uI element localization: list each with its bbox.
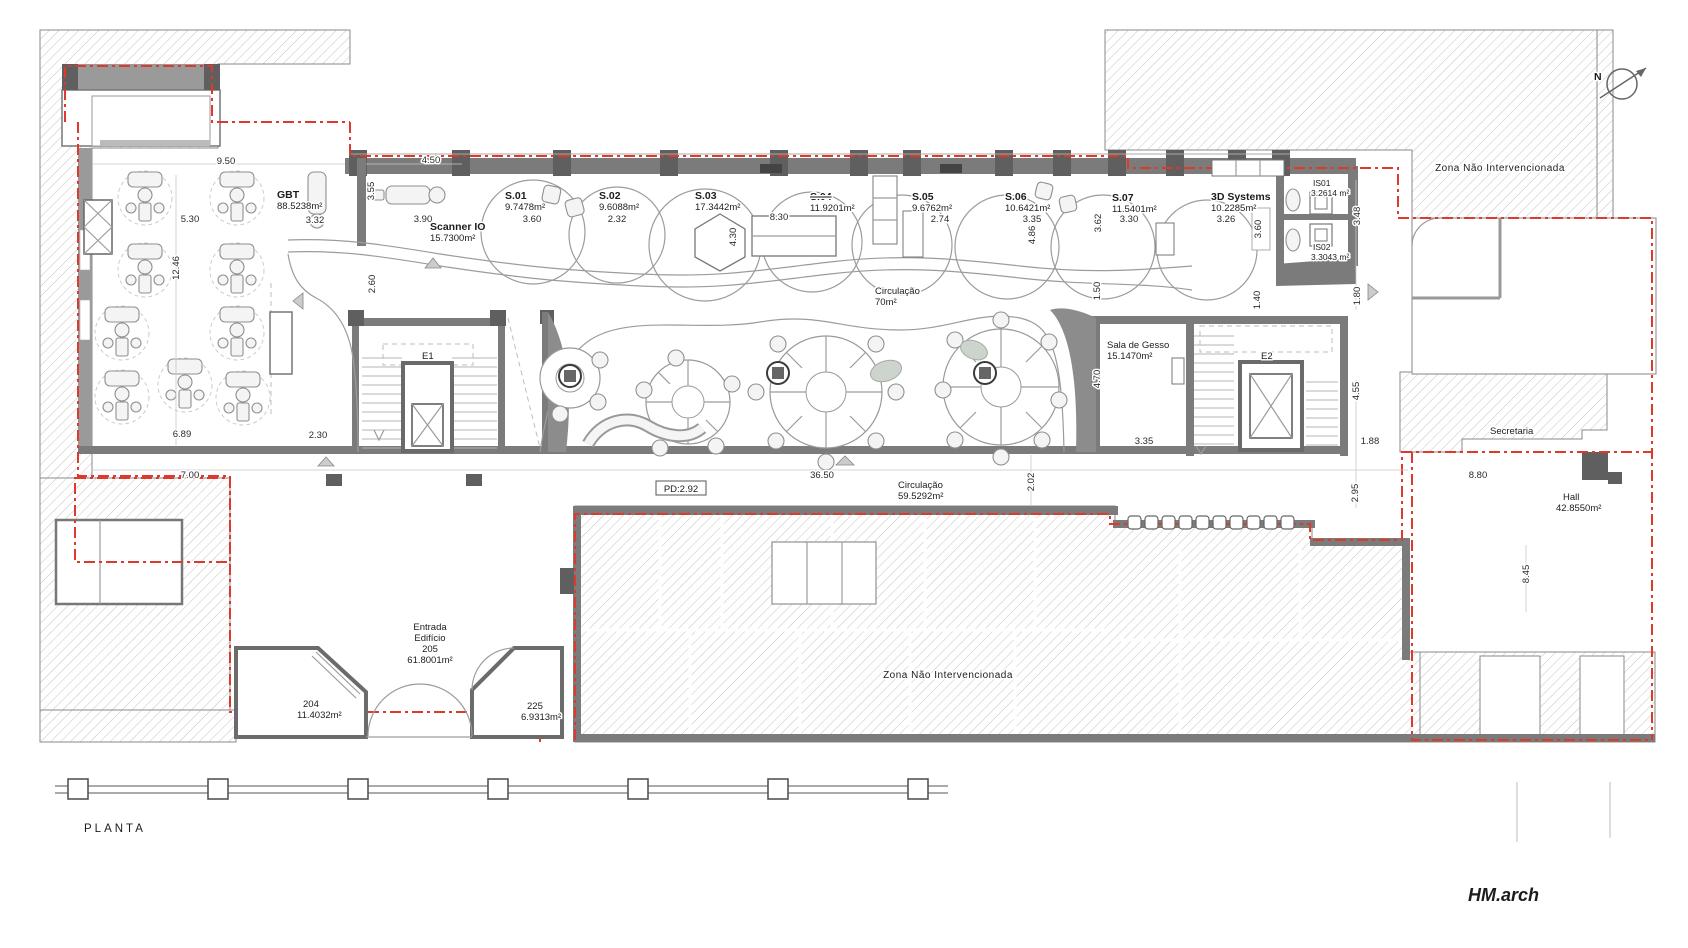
- room-label-is01: IS01: [1313, 178, 1331, 188]
- dim-label: 3.26: [1217, 214, 1236, 225]
- room-area-hall: 42.8550m²: [1556, 503, 1601, 514]
- dim-label: 3.62: [1093, 214, 1104, 233]
- colonnade: [55, 779, 1610, 842]
- room-label-s07: S.07: [1112, 192, 1134, 204]
- dim-label: 4.55: [1351, 382, 1362, 401]
- room-area-s06: 10.6421m²: [1005, 203, 1050, 214]
- dim-label: 5.30: [181, 214, 200, 225]
- room-label-225: 225: [527, 701, 543, 712]
- pd-height-label: PD:2.92: [664, 484, 698, 495]
- room-area-s02: 9.6088m²: [599, 202, 639, 213]
- room-area-circulacao-main: 59.5292m²: [898, 491, 943, 502]
- room-area-3dsystems: 10.2285m²: [1211, 203, 1256, 214]
- dim-label: 3.48: [1352, 207, 1363, 226]
- room-label-204: 204: [303, 699, 319, 710]
- floor-plan-drawing: N GBT 88.5238m² Scanner IO 15.7300m² S.0…: [0, 0, 1688, 948]
- drawing-title: PLANTA: [84, 823, 146, 835]
- firm-logo: HM.arch: [1468, 885, 1539, 905]
- dim-label: 3.32: [306, 215, 325, 226]
- zone-label-top: Zona Não Intervencionada: [1435, 163, 1565, 174]
- entrada-rooms: [236, 648, 562, 737]
- room-label-gesso: Sala de Gesso: [1107, 340, 1169, 351]
- floor-plan-canvas: N GBT 88.5238m² Scanner IO 15.7300m² S.0…: [0, 0, 1688, 948]
- core-label-e2: E2: [1261, 351, 1273, 362]
- dim-label: 7.00: [181, 470, 200, 481]
- room-area-s01: 9.7478m²: [505, 202, 545, 213]
- room-label-secretaria: Secretaria: [1490, 426, 1534, 437]
- dim-label: 1.88: [1361, 436, 1380, 447]
- room-area-204: 11.4032m²: [297, 710, 342, 721]
- core-label-e1: E1: [422, 351, 434, 362]
- dim-label: 3.60: [1253, 220, 1264, 239]
- room-area-s05: 9.6762m²: [912, 203, 952, 214]
- room-label-hall: Hall: [1563, 492, 1579, 503]
- dim-label: 2.95: [1350, 484, 1361, 503]
- dim-label: 2.02: [1026, 473, 1037, 492]
- dim-label: 6.89: [173, 429, 192, 440]
- room-area-s03: 17.3442m²: [695, 202, 740, 213]
- dim-label: 2.60: [367, 275, 378, 294]
- room-area-entrada: 61.8001m²: [407, 655, 452, 666]
- dim-label: 8.80: [1469, 470, 1488, 481]
- dim-label: 4.30: [728, 228, 739, 247]
- dim-label: 3.55: [366, 182, 377, 201]
- room-label-s03: S.03: [695, 190, 717, 202]
- room-label-circulacao-top: Circulação: [875, 286, 920, 297]
- room-area-is01: 3.2614 m²: [1311, 188, 1349, 198]
- zone-label-bottom: Zona Não Intervencionada: [883, 670, 1013, 681]
- room-label-3dsystems: 3D Systems: [1211, 191, 1271, 203]
- dim-label: 3.35: [1135, 436, 1154, 447]
- room-area-scanner: 15.7300m²: [430, 233, 475, 244]
- pd-height-tag: PD:2.92: [656, 481, 706, 495]
- dim-label: 9.50: [217, 156, 236, 167]
- room-label-entrada-3: 205: [422, 644, 438, 655]
- dim-label: 4.70: [1092, 370, 1103, 389]
- dim-label: 3.60: [523, 214, 542, 225]
- room-label-s02: S.02: [599, 190, 621, 202]
- room-label-s06: S.06: [1005, 191, 1027, 203]
- room-label-entrada-2: Edifício: [414, 633, 445, 644]
- dim-label: 3.35: [1023, 214, 1042, 225]
- room-label-s01: S.01: [505, 190, 527, 202]
- stair-core-e2: [1194, 326, 1338, 454]
- room-area-circulacao-top: 70m²: [875, 297, 897, 308]
- room-area-gbt: 88.5238m²: [277, 201, 322, 212]
- room-area-225: 6.9313m²: [521, 712, 561, 723]
- north-label: N: [1594, 71, 1602, 83]
- dim-label: 8.30: [770, 212, 789, 223]
- room-label-s04: S.04: [810, 191, 832, 203]
- room-label-s05: S.05: [912, 191, 934, 203]
- dim-label: 1.40: [1252, 291, 1263, 310]
- room-label-entrada-1: Entrada: [413, 622, 447, 633]
- dim-label: 4.86: [1027, 226, 1038, 245]
- room-label-gbt: GBT: [277, 189, 300, 201]
- dim-label: 2.30: [309, 430, 328, 441]
- dim-label: 4.50: [422, 155, 441, 166]
- room-label-scanner: Scanner IO: [430, 221, 485, 233]
- dim-label: 1.50: [1092, 282, 1103, 301]
- room-area-is02: 3.3043 m²: [1311, 252, 1349, 262]
- room-area-s04: 11.9201m²: [810, 203, 855, 214]
- dim-label: 12.46: [171, 256, 182, 280]
- dim-label: 2.32: [608, 214, 627, 225]
- room-label-circulacao-main: Circulação: [898, 480, 943, 491]
- dim-label: 36.50: [810, 470, 834, 481]
- dim-label: 3.90: [414, 214, 433, 225]
- dim-label: 3.30: [1120, 214, 1139, 225]
- top-left-block: [62, 64, 220, 146]
- dim-label: 2.74: [931, 214, 950, 225]
- dim-label: 1.80: [1352, 287, 1363, 306]
- dim-label: 8.45: [1521, 565, 1532, 584]
- room-area-gesso: 15.1470m²: [1107, 351, 1152, 362]
- room-label-is02: IS02: [1313, 242, 1331, 252]
